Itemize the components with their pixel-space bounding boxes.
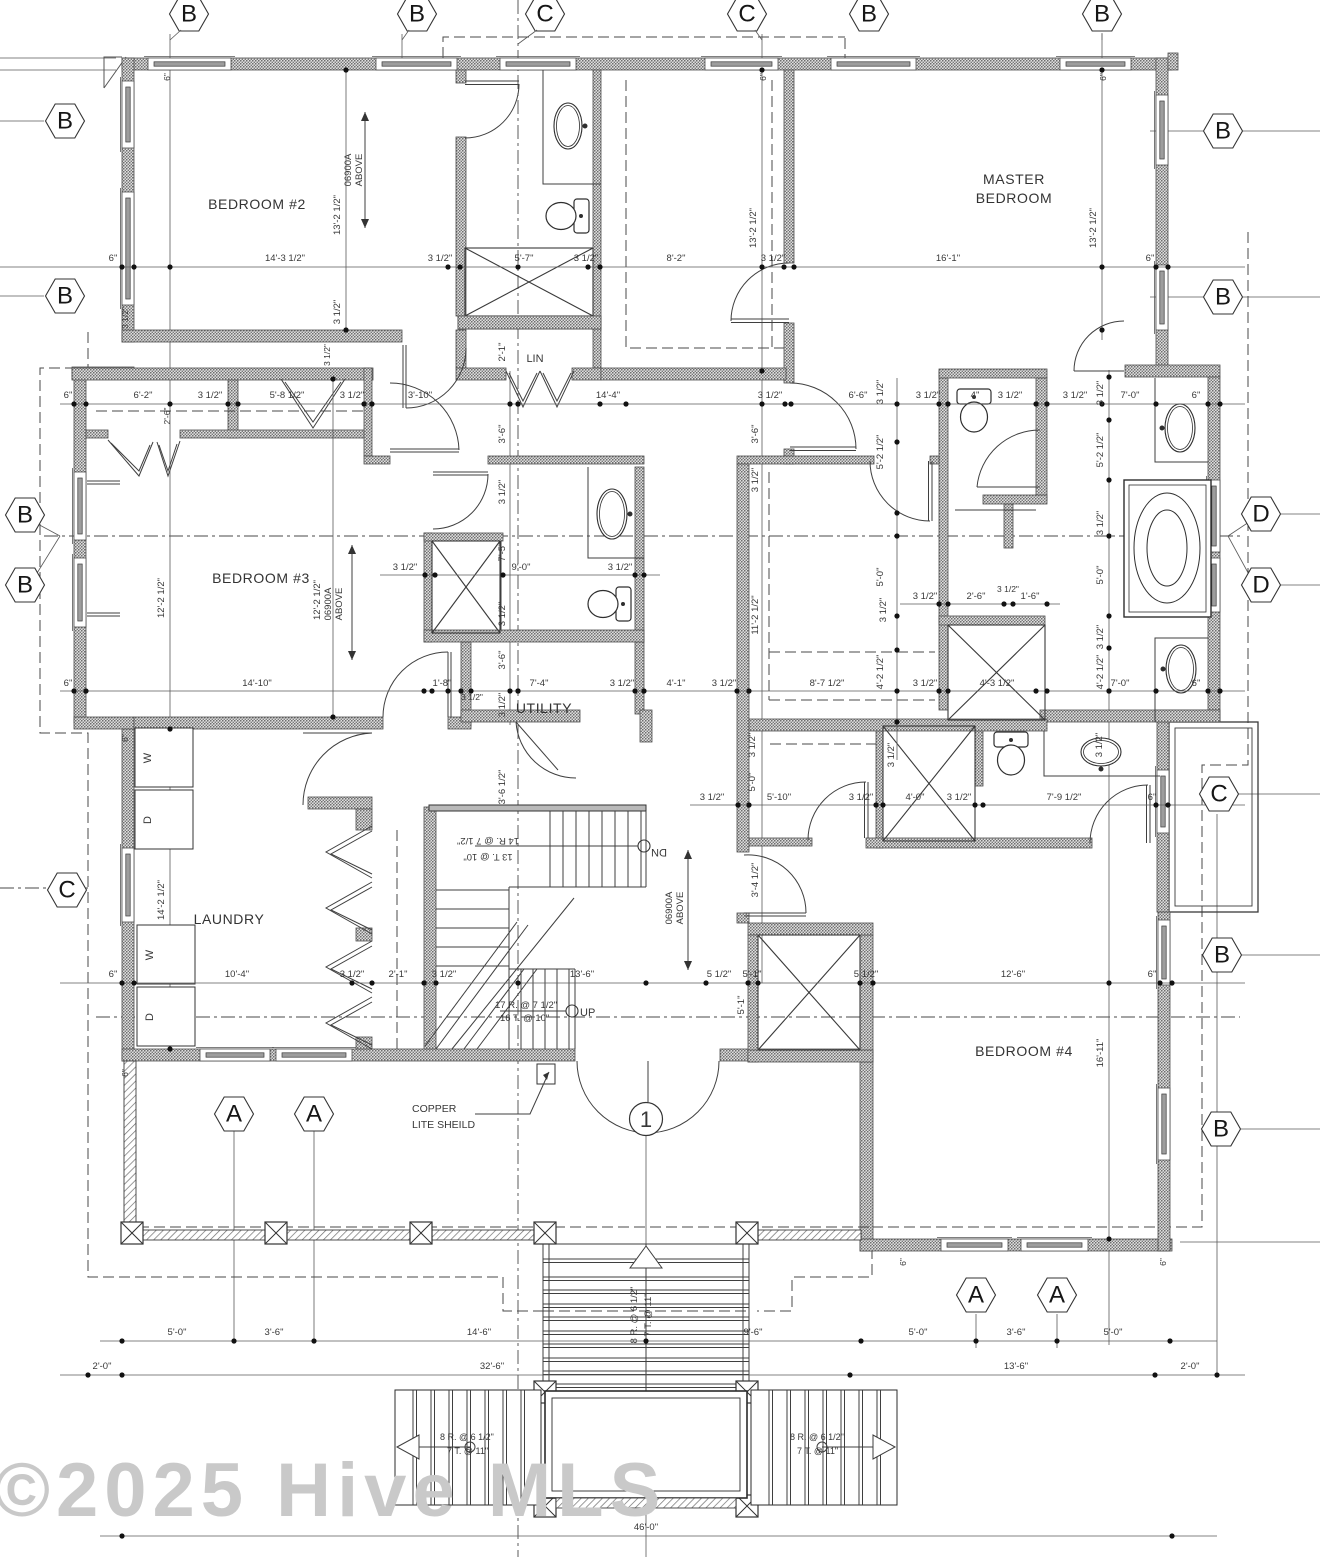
svg-text:B: B — [861, 1, 877, 28]
svg-text:14'-6": 14'-6" — [467, 1327, 491, 1338]
svg-text:D: D — [144, 1013, 156, 1021]
svg-text:8 R. @ 6 1/2": 8 R. @ 6 1/2" — [629, 1287, 640, 1344]
svg-text:3 1/2": 3 1/2" — [393, 562, 418, 573]
svg-text:B: B — [17, 572, 33, 599]
svg-text:6": 6" — [1192, 678, 1201, 689]
svg-text:5'-0": 5'-0" — [909, 1327, 928, 1338]
svg-text:5'-0": 5'-0" — [875, 568, 886, 587]
svg-text:13'-2 1/2": 13'-2 1/2" — [332, 195, 343, 235]
svg-text:6": 6" — [1148, 792, 1157, 803]
svg-text:BEDROOM #4: BEDROOM #4 — [975, 1043, 1073, 1059]
svg-text:©2025 Hive MLS: ©2025 Hive MLS — [0, 1448, 666, 1533]
svg-text:A: A — [1049, 1282, 1065, 1309]
svg-text:4'-2 1/2": 4'-2 1/2" — [1095, 655, 1106, 690]
svg-text:3 1/2": 3 1/2" — [332, 300, 343, 325]
svg-text:06900A: 06900A — [664, 891, 675, 924]
svg-text:3 1/2": 3 1/2" — [700, 792, 725, 803]
svg-text:16 T. @ 10": 16 T. @ 10" — [500, 1013, 549, 1024]
svg-text:3 1/2": 3 1/2" — [875, 380, 886, 405]
svg-text:3 1/2": 3 1/2" — [1095, 381, 1106, 406]
svg-text:6": 6" — [109, 969, 118, 980]
svg-text:3'-6 1/2": 3'-6 1/2" — [497, 770, 508, 805]
svg-text:3 1/2": 3 1/2" — [947, 792, 972, 803]
svg-text:D: D — [1252, 572, 1269, 599]
svg-text:4'-0": 4'-0" — [906, 792, 925, 803]
svg-text:3 1/2": 3 1/2" — [1063, 390, 1088, 401]
svg-text:3 1/2": 3 1/2" — [913, 678, 938, 689]
svg-text:W: W — [144, 949, 156, 960]
svg-text:3 1/2": 3 1/2" — [608, 562, 633, 573]
svg-text:7'-0": 7'-0" — [1121, 390, 1140, 401]
svg-text:DN: DN — [651, 846, 667, 858]
svg-text:6'-2": 6'-2" — [134, 390, 153, 401]
svg-text:UP: UP — [580, 1007, 595, 1019]
svg-text:13'-6": 13'-6" — [570, 969, 594, 980]
svg-text:1'-6": 1'-6" — [1021, 591, 1040, 602]
svg-text:16'-11": 16'-11" — [1095, 1039, 1106, 1068]
svg-text:4'-2 1/2": 4'-2 1/2" — [875, 655, 886, 690]
svg-text:BEDROOM #2: BEDROOM #2 — [208, 196, 306, 212]
svg-text:4'-3 1/2": 4'-3 1/2" — [980, 678, 1015, 689]
svg-text:5 1/2": 5 1/2" — [854, 969, 879, 980]
svg-text:3 1/2": 3 1/2" — [120, 307, 130, 329]
svg-text:LAUNDRY: LAUNDRY — [194, 911, 265, 927]
svg-text:6": 6" — [64, 678, 73, 689]
svg-text:8'-2": 8'-2" — [667, 253, 686, 264]
svg-text:3'-10": 3'-10" — [408, 390, 432, 401]
svg-text:3 1/2": 3 1/2" — [340, 390, 365, 401]
svg-text:LITE SHEILD: LITE SHEILD — [412, 1119, 475, 1131]
svg-text:9'-6": 9'-6" — [744, 1327, 763, 1338]
svg-text:B: B — [409, 1, 425, 28]
svg-text:3'-4 1/2": 3'-4 1/2" — [750, 863, 761, 898]
svg-text:3'-6": 3'-6" — [1007, 1327, 1026, 1338]
svg-text:3'-6": 3'-6" — [750, 425, 761, 444]
svg-text:ABOVE: ABOVE — [354, 154, 365, 187]
svg-text:3 1/2": 3 1/2" — [497, 602, 508, 627]
svg-text:7 T. @ 11": 7 T. @ 11" — [643, 1293, 654, 1336]
svg-text:5'-1": 5'-1" — [743, 969, 762, 980]
svg-text:7'-9 1/2": 7'-9 1/2" — [1047, 792, 1082, 803]
svg-text:C: C — [738, 1, 755, 28]
svg-text:B: B — [57, 108, 73, 135]
svg-text:13 T. @ 10": 13 T. @ 10" — [463, 851, 512, 862]
svg-text:A: A — [306, 1101, 322, 1128]
svg-text:3 1/2": 3 1/2" — [322, 344, 332, 366]
svg-text:3 1/2": 3 1/2" — [849, 792, 874, 803]
svg-text:32'-6": 32'-6" — [480, 1361, 504, 1372]
svg-text:10'-4": 10'-4" — [225, 969, 249, 980]
svg-text:C: C — [536, 1, 553, 28]
svg-text:12'-2 1/2": 12'-2 1/2" — [312, 580, 323, 620]
svg-text:3 1/2": 3 1/2" — [758, 390, 783, 401]
svg-text:5'-0": 5'-0" — [1095, 566, 1106, 585]
svg-text:3 1/2": 3 1/2" — [997, 584, 1019, 594]
svg-text:3 1/2": 3 1/2" — [1095, 625, 1106, 650]
svg-text:5 1/2": 5 1/2" — [707, 969, 732, 980]
svg-text:COPPER: COPPER — [412, 1103, 457, 1115]
svg-text:3 1/2": 3 1/2" — [497, 693, 508, 718]
svg-text:UTILITY: UTILITY — [516, 700, 572, 716]
svg-text:9'-0": 9'-0" — [512, 562, 531, 573]
svg-text:5'-8 1/2": 5'-8 1/2" — [270, 390, 305, 401]
svg-text:06900A: 06900A — [343, 153, 354, 186]
svg-text:3'-6": 3'-6" — [497, 651, 508, 670]
svg-text:5'-2 1/2": 5'-2 1/2" — [1095, 433, 1106, 468]
svg-text:5'-7": 5'-7" — [515, 253, 534, 264]
svg-text:B: B — [17, 502, 33, 529]
svg-text:6": 6" — [120, 1069, 130, 1077]
svg-text:5'-0": 5'-0" — [1104, 1327, 1123, 1338]
svg-text:4'-1": 4'-1" — [667, 678, 686, 689]
svg-text:3 1/2": 3 1/2" — [497, 480, 508, 505]
svg-text:6": 6" — [162, 73, 172, 81]
svg-text:3 1/2": 3 1/2" — [878, 598, 889, 623]
svg-text:LIN: LIN — [526, 353, 543, 365]
svg-text:A: A — [226, 1101, 242, 1128]
svg-text:3 1/2": 3 1/2" — [1095, 511, 1106, 536]
svg-text:2'-6": 2'-6" — [162, 408, 172, 425]
svg-text:06900A: 06900A — [323, 587, 334, 620]
svg-text:A: A — [968, 1282, 984, 1309]
svg-text:8'-7 1/2": 8'-7 1/2" — [810, 678, 845, 689]
svg-text:5'-2 1/2": 5'-2 1/2" — [875, 435, 886, 470]
svg-text:B: B — [1214, 942, 1230, 969]
svg-text:13'-2 1/2": 13'-2 1/2" — [748, 208, 759, 248]
svg-text:3 1/2": 3 1/2" — [747, 733, 758, 758]
svg-text:2'-1": 2'-1" — [389, 969, 408, 980]
svg-text:6": 6" — [1192, 390, 1201, 401]
svg-text:5'-0": 5'-0" — [747, 773, 758, 792]
svg-text:6": 6" — [758, 73, 768, 81]
svg-text:ABOVE: ABOVE — [675, 892, 686, 925]
svg-text:3 1/2": 3 1/2" — [916, 390, 941, 401]
svg-text:BEDROOM #3: BEDROOM #3 — [212, 570, 310, 586]
svg-text:MASTER: MASTER — [983, 171, 1045, 187]
svg-text:BEDROOM: BEDROOM — [976, 190, 1053, 206]
svg-text:6": 6" — [1146, 253, 1155, 264]
svg-text:ABOVE: ABOVE — [334, 588, 345, 621]
svg-text:6": 6" — [898, 1258, 908, 1266]
svg-text:1: 1 — [640, 1107, 652, 1132]
svg-text:14'-3 1/2": 14'-3 1/2" — [265, 253, 305, 264]
svg-text:6": 6" — [1098, 73, 1108, 81]
svg-text:3 1/2": 3 1/2" — [1094, 733, 1105, 758]
svg-text:7'-4": 7'-4" — [530, 678, 549, 689]
svg-text:6": 6" — [1158, 1258, 1168, 1266]
svg-text:D: D — [142, 816, 154, 824]
svg-text:13'-2 1/2": 13'-2 1/2" — [1088, 208, 1099, 248]
svg-text:3 1/2": 3 1/2" — [610, 678, 635, 689]
svg-text:3 1/2": 3 1/2" — [340, 969, 365, 980]
svg-text:7'-5": 7'-5" — [497, 543, 508, 562]
svg-text:12'-2 1/2": 12'-2 1/2" — [156, 578, 167, 618]
svg-text:8 R. @ 6 1/2": 8 R. @ 6 1/2" — [790, 1432, 844, 1442]
svg-text:3 1/2": 3 1/2" — [198, 390, 223, 401]
svg-text:C: C — [58, 877, 75, 904]
svg-text:D: D — [1252, 501, 1269, 528]
svg-text:2'-0": 2'-0" — [1181, 1361, 1200, 1372]
svg-text:12'-6": 12'-6" — [1001, 969, 1025, 980]
svg-text:14'-2 1/2": 14'-2 1/2" — [156, 880, 167, 920]
svg-text:B: B — [181, 1, 197, 28]
svg-text:5'-0": 5'-0" — [168, 1327, 187, 1338]
svg-text:8 R. @ 6 1/2": 8 R. @ 6 1/2" — [440, 1432, 494, 1442]
svg-text:2'-1": 2'-1" — [497, 343, 508, 362]
svg-text:4": 4" — [971, 390, 980, 401]
svg-text:3 1/2": 3 1/2" — [913, 591, 938, 602]
svg-text:3 1/2": 3 1/2" — [750, 468, 761, 493]
svg-text:B: B — [1094, 1, 1110, 28]
svg-text:3 1/2": 3 1/2" — [428, 253, 453, 264]
svg-text:5'-1": 5'-1" — [736, 996, 747, 1015]
svg-text:B: B — [1215, 284, 1231, 311]
svg-text:W: W — [142, 752, 154, 763]
svg-text:C: C — [1210, 781, 1227, 808]
svg-text:2'-6": 2'-6" — [967, 591, 986, 602]
svg-text:B: B — [1213, 1116, 1229, 1143]
svg-text:3 1/2": 3 1/2" — [886, 743, 897, 768]
svg-text:6": 6" — [109, 253, 118, 264]
svg-text:3 1/2": 3 1/2" — [761, 253, 786, 264]
svg-text:3 1/2": 3 1/2" — [574, 253, 599, 264]
svg-text:7'-0": 7'-0" — [1111, 678, 1130, 689]
svg-text:3 1/2": 3 1/2" — [712, 678, 737, 689]
svg-text:3 1/2": 3 1/2" — [998, 390, 1023, 401]
svg-text:5'-10": 5'-10" — [767, 792, 791, 803]
svg-text:14'-10": 14'-10" — [242, 678, 271, 689]
svg-text:2'-0": 2'-0" — [93, 1361, 112, 1372]
svg-text:6": 6" — [120, 734, 130, 742]
svg-text:1'-8": 1'-8" — [433, 678, 452, 689]
svg-text:17 R. @ 7 1/2": 17 R. @ 7 1/2" — [495, 1000, 557, 1011]
svg-text:7 T. @ 11": 7 T. @ 11" — [797, 1446, 838, 1456]
svg-text:3 1/2": 3 1/2" — [432, 969, 457, 980]
svg-text:6": 6" — [1148, 969, 1157, 980]
svg-text:B: B — [1215, 118, 1231, 145]
svg-text:3 1/2": 3 1/2" — [461, 692, 483, 702]
svg-text:6'-6": 6'-6" — [849, 390, 868, 401]
svg-text:14 R. @ 7 1/2": 14 R. @ 7 1/2" — [457, 835, 519, 846]
svg-text:3'-6": 3'-6" — [497, 425, 508, 444]
svg-text:16'-1": 16'-1" — [936, 253, 960, 264]
svg-text:3'-6": 3'-6" — [265, 1327, 284, 1338]
svg-text:14'-4": 14'-4" — [596, 390, 620, 401]
svg-text:B: B — [57, 283, 73, 310]
svg-text:6": 6" — [64, 390, 73, 401]
svg-text:11'-2 1/2": 11'-2 1/2" — [750, 595, 761, 634]
svg-text:13'-6": 13'-6" — [1004, 1361, 1028, 1372]
